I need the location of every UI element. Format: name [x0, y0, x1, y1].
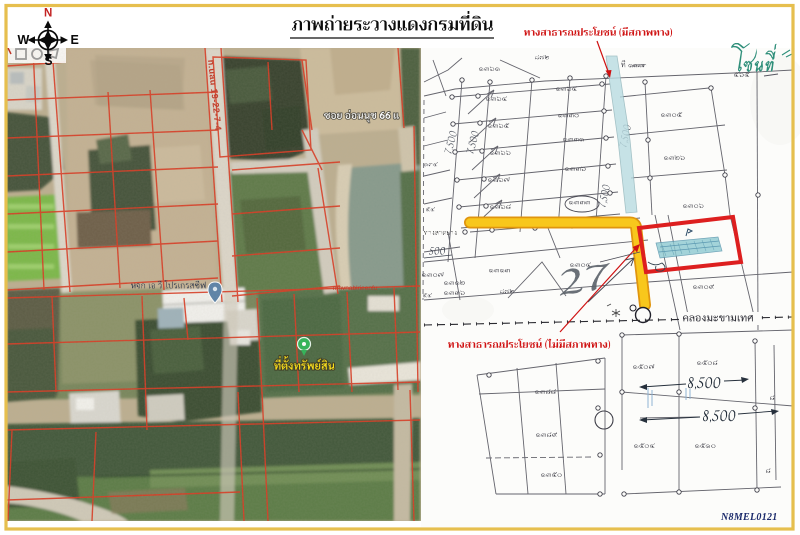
svg-text:E: E — [71, 33, 79, 47]
svg-text:mnvnablrieenfu: mnvnablrieenfu — [333, 285, 378, 292]
svg-text:W: W — [18, 33, 30, 47]
svg-text:N8MEL0121: N8MEL0121 — [720, 512, 778, 523]
svg-text:S: S — [45, 54, 53, 68]
svg-text:N: N — [44, 8, 52, 20]
